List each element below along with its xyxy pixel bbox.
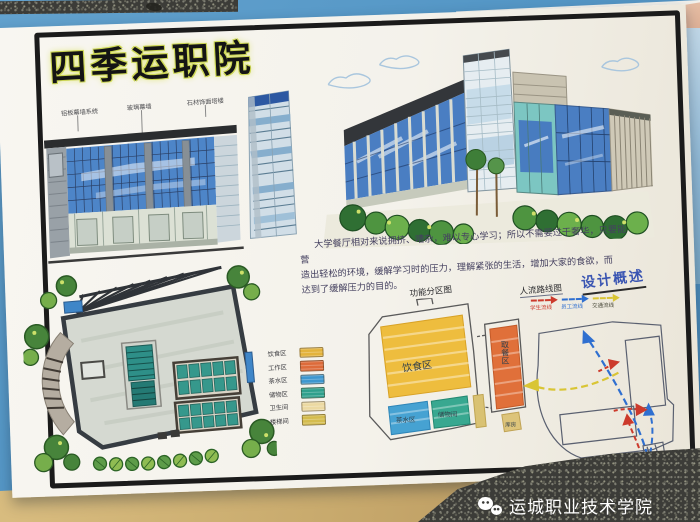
legend-label: 饮食区 bbox=[267, 347, 300, 358]
legend-row: 楼梯间 bbox=[270, 412, 326, 427]
watermark: 运城职业技术学院 bbox=[478, 493, 653, 518]
legend-swatch bbox=[300, 360, 324, 371]
elevation-drawing bbox=[43, 118, 244, 271]
zone-label-pantry: 库房 bbox=[505, 420, 516, 428]
circulation-diagram: 人流路线图 学生流线 员工流线 交通流线 bbox=[511, 278, 689, 466]
wechat-icon bbox=[478, 495, 503, 517]
legend-swatch bbox=[300, 373, 324, 384]
legend-label: 楼梯间 bbox=[270, 415, 303, 426]
tower-elevation-drawing bbox=[243, 88, 298, 240]
zoning-diagram: 功能分区图 bbox=[351, 282, 529, 466]
legend-label: 储物区 bbox=[269, 388, 302, 399]
red-dashed-arrow-icon bbox=[531, 299, 551, 302]
legend-label: 茶水区 bbox=[268, 374, 301, 385]
legend-swatch bbox=[301, 400, 325, 411]
legend-label: 工作区 bbox=[268, 361, 301, 372]
floor-strip-top-left bbox=[0, 0, 238, 14]
board-title: 四季运职院 bbox=[48, 27, 256, 92]
flow-label: 员工流线 bbox=[561, 302, 583, 311]
watermark-text: 运城职业技术学院 bbox=[509, 493, 653, 518]
flow-legend-item: 学生流线 bbox=[530, 296, 553, 312]
floor-plan-drawing bbox=[20, 259, 277, 482]
perspective-rendering bbox=[313, 41, 655, 249]
zone-color-legend: 饮食区 工作区 茶水区 储物区 卫生间 楼梯间 bbox=[267, 345, 326, 428]
legend-swatch bbox=[299, 346, 323, 357]
flow-label: 交通流线 bbox=[592, 301, 614, 310]
legend-label: 卫生间 bbox=[269, 401, 302, 412]
shrub-row bbox=[93, 447, 219, 475]
blue-dashed-arrow-icon bbox=[562, 298, 582, 301]
design-board: 四季运职院 铝板幕墙系统 玻璃幕墙 石材饰面塔楼 bbox=[0, 4, 700, 498]
flow-legend-item: 员工流线 bbox=[561, 295, 584, 311]
flow-label: 学生流线 bbox=[530, 303, 552, 312]
yellow-dashed-arrow-icon bbox=[593, 297, 613, 300]
legend-swatch bbox=[301, 387, 325, 398]
flow-legend: 学生流线 员工流线 交通流线 bbox=[530, 294, 615, 312]
flow-legend-item: 交通流线 bbox=[592, 294, 615, 310]
circulation-plan bbox=[512, 312, 685, 466]
zone-label-tea: 茶水区 bbox=[396, 414, 416, 425]
zone-label-serving: 取餐区 bbox=[499, 340, 512, 384]
zone-label-storage: 储物间 bbox=[438, 408, 458, 419]
elevation-label-2: 玻璃幕墙 bbox=[127, 101, 152, 112]
legend-swatch bbox=[302, 414, 326, 425]
wechat-bubble-small bbox=[491, 505, 502, 515]
